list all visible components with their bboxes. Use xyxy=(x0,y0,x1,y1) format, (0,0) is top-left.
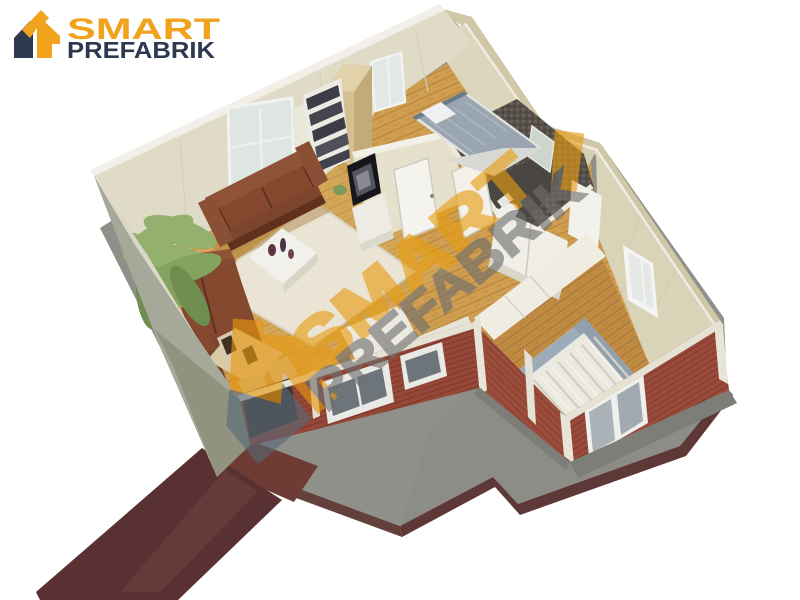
svg-text:PREFABRIK: PREFABRIK xyxy=(67,37,215,63)
